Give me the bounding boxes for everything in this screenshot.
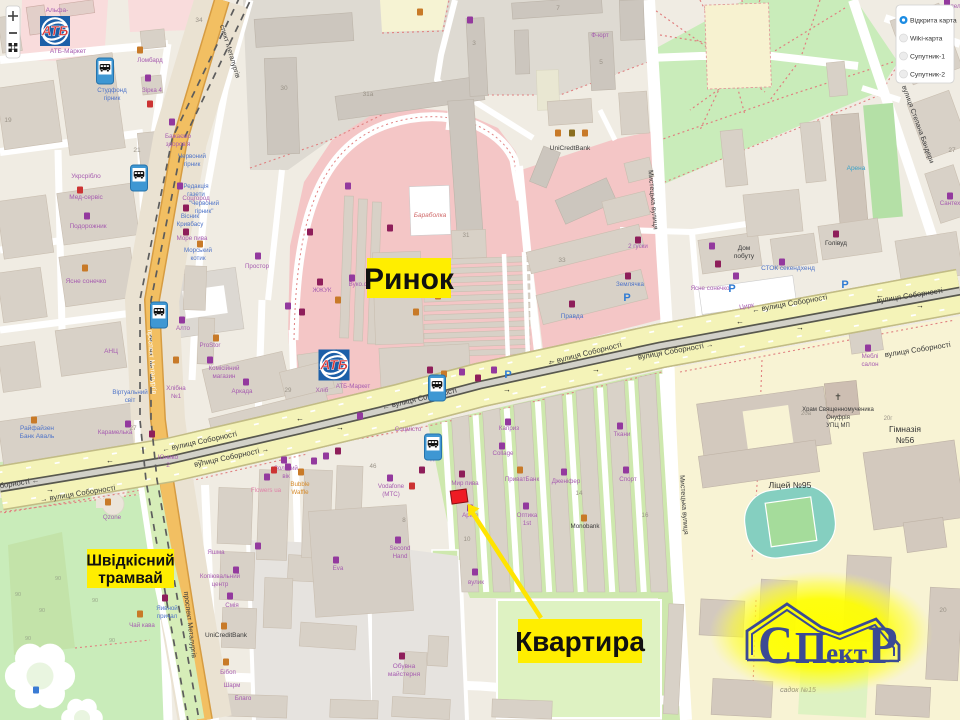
svg-text:Ломбард: Ломбард — [137, 57, 163, 64]
svg-text:Hand: Hand — [393, 553, 408, 560]
svg-text:Голівуд: Голівуд — [825, 239, 847, 247]
svg-text:Monobank: Monobank — [571, 523, 601, 530]
svg-text:Відкрита карта: Відкрита карта — [910, 17, 957, 25]
svg-text:ПриватБанк: ПриватБанк — [505, 476, 540, 483]
svg-text:АТБ-Маркет: АТБ-Маркет — [50, 48, 86, 55]
svg-text:Аркада: Аркада — [232, 388, 253, 395]
svg-text:Бібоп: Бібоп — [220, 669, 236, 676]
svg-text:Швідкісний: Швідкісний — [86, 552, 174, 569]
svg-text:←: ← — [548, 356, 556, 365]
svg-text:34: 34 — [195, 17, 203, 24]
svg-text:Collage: Collage — [493, 450, 515, 457]
svg-text:Банк Аваль: Банк Аваль — [20, 433, 55, 440]
svg-text:АТБ: АТБ — [319, 358, 348, 374]
svg-text:10: 10 — [464, 536, 471, 543]
svg-text:здоров'я: здоров'я — [166, 141, 190, 148]
svg-text:→: → — [336, 423, 344, 432]
svg-text:29: 29 — [285, 387, 292, 394]
svg-text:Зірка 4: Зірка 4 — [142, 87, 163, 94]
svg-text:Шарм: Шарм — [224, 682, 241, 689]
svg-text:2 гуски: 2 гуски — [628, 243, 648, 250]
svg-text:31а: 31а — [363, 91, 374, 98]
svg-text:14: 14 — [576, 490, 583, 497]
svg-text:UniCreditBank: UniCreditBank — [205, 632, 248, 639]
svg-text:Правда: Правда — [561, 313, 584, 320]
svg-text:світ: світ — [125, 397, 136, 404]
svg-text:P: P — [841, 279, 848, 291]
svg-text:→: → — [503, 385, 511, 394]
svg-text:→: → — [592, 365, 600, 374]
svg-text:Wiki-карта: Wiki-карта — [910, 36, 943, 43]
svg-text:вулик: вулик — [468, 579, 484, 586]
svg-text:Ф-юрт: Ф-юрт — [591, 32, 609, 39]
svg-text:5: 5 — [599, 59, 603, 66]
svg-text:→: → — [916, 301, 924, 310]
svg-text:Віртуальний: Віртуальний — [112, 389, 148, 396]
svg-text:Бажаємо: Бажаємо — [165, 133, 191, 140]
svg-text:Онуфрія: Онуфрія — [826, 415, 850, 421]
svg-text:Qzone: Qzone — [103, 514, 122, 521]
svg-text:Укрсрібло: Укрсрібло — [71, 172, 101, 180]
svg-text:Дом: Дом — [738, 245, 751, 252]
svg-text:UniCredtBank: UniCredtBank — [550, 145, 591, 152]
svg-text:P: P — [728, 283, 735, 295]
svg-text:→: → — [46, 485, 54, 494]
svg-text:Квартира: Квартира — [515, 626, 645, 657]
svg-text:3: 3 — [472, 40, 476, 47]
svg-text:гірник": гірник" — [195, 208, 214, 215]
svg-text:90: 90 — [92, 598, 98, 604]
svg-text:90: 90 — [25, 636, 31, 642]
svg-text:16: 16 — [642, 512, 649, 519]
svg-text:Каприз: Каприз — [499, 425, 519, 432]
svg-text:Райфайзен: Райфайзен — [20, 424, 54, 432]
svg-text:Ринок: Ринок — [364, 263, 455, 296]
svg-text:P: P — [623, 292, 630, 304]
svg-text:"Червоний: "Червоний — [189, 200, 220, 207]
svg-text:31: 31 — [463, 232, 470, 239]
svg-text:Мир пива: Мир пива — [451, 480, 479, 487]
svg-text:←: ← — [736, 317, 744, 326]
svg-text:Bubble: Bubble — [290, 481, 310, 488]
svg-text:Ліцей №95: Ліцей №95 — [769, 480, 812, 490]
svg-text:Vodafone: Vodafone — [378, 483, 405, 490]
svg-text:Гімназія: Гімназія — [889, 424, 921, 434]
svg-text:Мед-сервіс: Мед-сервіс — [69, 193, 103, 201]
svg-text:30: 30 — [280, 85, 288, 92]
svg-text:Карамелька: Карамелька — [98, 429, 133, 436]
svg-text:гірник: гірник — [184, 161, 201, 168]
svg-text:СТОК секендхенд: СТОК секендхенд — [761, 265, 815, 272]
svg-text:салон: салон — [861, 361, 878, 368]
svg-text:Червоний: Червоний — [178, 153, 207, 160]
svg-text:Ткани: Ткани — [614, 431, 631, 438]
svg-text:7: 7 — [556, 5, 560, 12]
svg-text:Хлібна: Хлібна — [166, 385, 186, 392]
svg-text:Землячка: Землячка — [616, 281, 644, 288]
svg-text:АТБ: АТБ — [41, 24, 69, 39]
svg-text:Оптика: Оптика — [517, 512, 538, 519]
svg-text:Обувна: Обувна — [393, 662, 416, 670]
svg-text:90: 90 — [15, 592, 21, 598]
svg-text:№56: №56 — [896, 435, 915, 445]
svg-text:46: 46 — [370, 463, 377, 470]
svg-text:причал: причал — [157, 613, 178, 620]
svg-text:✝: ✝ — [834, 392, 842, 402]
svg-text:магазин: магазин — [213, 373, 236, 380]
svg-text:вік: вік — [282, 473, 290, 480]
svg-text:Алто: Алто — [176, 325, 191, 332]
svg-text:Благо: Благо — [235, 695, 252, 702]
svg-text:20г: 20г — [884, 416, 894, 422]
svg-text:20а: 20а — [801, 411, 812, 417]
svg-text:Ясне сонечко: Ясне сонечко — [66, 278, 107, 285]
svg-text:центр: центр — [212, 581, 229, 588]
svg-text:←: ← — [296, 414, 304, 423]
svg-text:№1: №1 — [171, 393, 182, 400]
svg-text:→: → — [796, 323, 804, 332]
svg-text:Супутник-2: Супутник-2 — [910, 72, 945, 79]
svg-text:Дженіфер: Дженіфер — [552, 478, 581, 485]
svg-text:Редакція: Редакція — [183, 183, 208, 190]
svg-text:Eva: Eva — [333, 565, 344, 572]
svg-text:90: 90 — [55, 576, 61, 582]
svg-text:Бараболка: Бараболка — [414, 211, 447, 219]
svg-text:Копіювальний: Копіювальний — [200, 573, 241, 580]
svg-text:Хліб: Хліб — [316, 387, 329, 394]
svg-text:Second: Second — [390, 545, 412, 552]
svg-text:Альфа-: Альфа- — [46, 7, 69, 14]
svg-text:20: 20 — [939, 607, 947, 614]
svg-text:21: 21 — [133, 147, 141, 154]
svg-text:←: ← — [106, 456, 114, 465]
svg-text:Flowers ua: Flowers ua — [251, 487, 282, 494]
svg-text:Яивной: Яивной — [156, 605, 178, 612]
svg-text:ProStor: ProStor — [200, 342, 221, 349]
svg-text:Чай кава: Чай кава — [129, 622, 155, 629]
svg-text:Меблі: Меблі — [862, 353, 879, 360]
svg-text:Подорожник: Подорожник — [69, 223, 106, 230]
svg-text:котик: котик — [190, 255, 205, 262]
svg-text:УПЦ МП: УПЦ МП — [826, 423, 850, 429]
svg-text:Супутник-1: Супутник-1 — [910, 54, 945, 61]
svg-text:19: 19 — [4, 117, 12, 124]
svg-text:Комісійний: Комісійний — [209, 365, 240, 372]
svg-text:90: 90 — [109, 638, 115, 644]
svg-text:Храм Священномученика: Храм Священномученика — [802, 407, 874, 413]
svg-text:Простор: Простор — [245, 263, 270, 270]
svg-text:2: 2 — [166, 462, 170, 469]
svg-text:Ясне сонечко: Ясне сонечко — [691, 285, 730, 292]
svg-text:33: 33 — [558, 257, 566, 264]
svg-text:Морський: Морський — [184, 247, 213, 254]
svg-text:Море пива: Море пива — [177, 235, 208, 242]
svg-text:гірник: гірник — [104, 95, 121, 102]
svg-text:Кривбасу: Кривбасу — [177, 221, 205, 228]
svg-text:Соцмісто: Соцмісто — [395, 426, 422, 433]
svg-text:трамвай: трамвай — [98, 570, 163, 587]
svg-text:Сантех: Сантех — [940, 200, 960, 207]
svg-text:Спорт: Спорт — [619, 476, 637, 483]
svg-text:побуту: побуту — [734, 252, 755, 260]
svg-text:(МТС): (МТС) — [382, 491, 400, 498]
svg-text:1st: 1st — [523, 520, 532, 527]
svg-text:Студфонд: Студфонд — [97, 87, 127, 94]
svg-text:90: 90 — [39, 608, 45, 614]
svg-text:Юнико: Юнико — [158, 454, 179, 461]
svg-text:газети: газети — [187, 191, 205, 198]
svg-text:Смія: Смія — [225, 602, 238, 609]
svg-text:←: ← — [876, 291, 884, 300]
svg-text:27: 27 — [948, 147, 956, 154]
svg-text:Яшма: Яшма — [207, 549, 225, 556]
svg-text:АТБ-Маркет: АТБ-Маркет — [336, 383, 371, 390]
svg-text:Waffle: Waffle — [291, 489, 309, 496]
svg-text:АНЦ: АНЦ — [104, 348, 118, 355]
svg-text:ЖЖУК: ЖЖУК — [312, 287, 331, 294]
svg-text:→: → — [196, 455, 204, 464]
svg-text:майстерня: майстерня — [388, 670, 421, 678]
svg-text:Арена: Арена — [847, 165, 866, 172]
svg-text:P: P — [504, 369, 511, 381]
svg-text:8: 8 — [402, 517, 406, 524]
